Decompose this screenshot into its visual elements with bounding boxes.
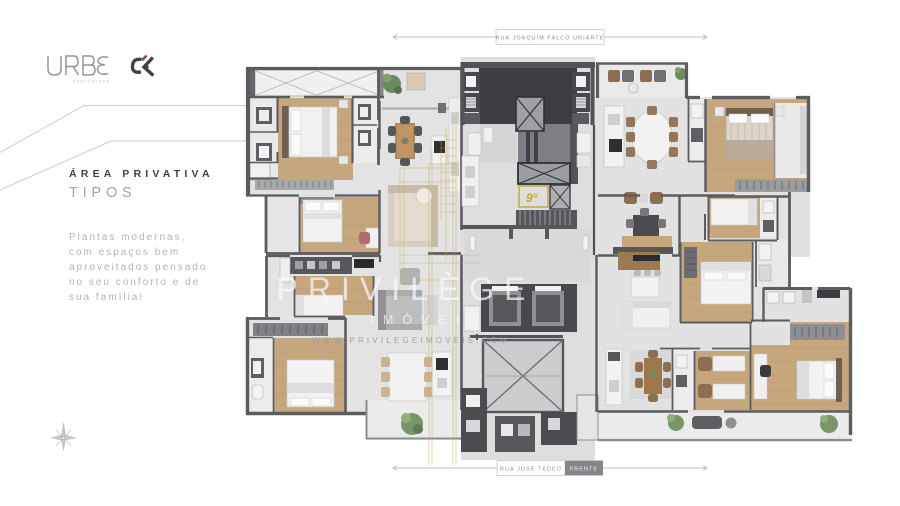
svg-text:WWW.PRIVILEGEIMOVEIS.COM: WWW.PRIVILEGEIMOVEIS.COM [312, 336, 510, 345]
svg-text:com espaços bem: com espaços bem [69, 247, 180, 258]
svg-text:Plantas modernas,: Plantas modernas, [69, 232, 186, 243]
svg-text:ÁREA PRIVATIVA: ÁREA PRIVATIVA [69, 167, 214, 180]
svg-text:aproveitados pensado: aproveitados pensado [69, 262, 207, 273]
svg-text:no seu conforto e de: no seu conforto e de [69, 277, 200, 288]
svg-text:IMÓVEIS: IMÓVEIS [370, 312, 485, 327]
svg-text:9°: 9° [526, 191, 538, 205]
svg-text:FRENTE: FRENTE [570, 467, 598, 473]
svg-text:RUA JOAQUIM FALCO URIARTE: RUA JOAQUIM FALCO URIARTE [496, 36, 605, 42]
svg-text:PRIVILÈGE: PRIVILÈGE [277, 271, 536, 307]
svg-text:EDIFICACOES: EDIFICACOES [73, 80, 110, 84]
svg-text:RUA JOSÉ TEDEO: RUA JOSÉ TEDEO [500, 466, 562, 473]
svg-text:sua família!: sua família! [69, 292, 144, 303]
svg-text:TIPOS: TIPOS [69, 185, 137, 201]
